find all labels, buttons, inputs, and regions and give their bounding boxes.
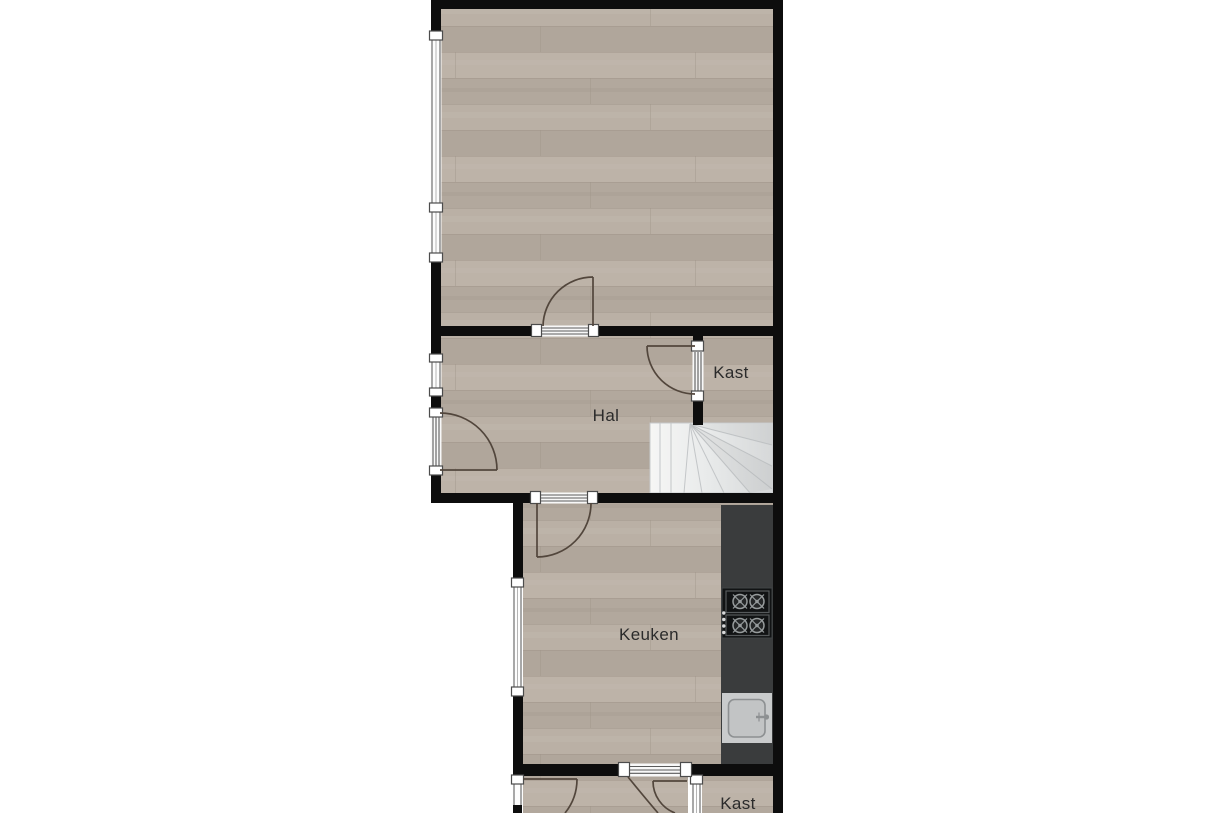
wall-keuken-bottom [690,764,783,776]
floorplan-drawing: Hal Kast Keuken Kast [0,0,1220,813]
kitchen-counter [721,505,773,764]
wall-left-seg [431,0,441,33]
doorway-hal-keuken [531,492,598,504]
wall-main-hal-divider [598,326,783,336]
window-bottom-divider [691,775,703,813]
doorway-main-hal [532,325,599,337]
room-floor-main [441,8,773,326]
wall-left-seg [431,262,441,356]
floorplan-canvas: Hal Kast Keuken Kast [0,0,1220,813]
sink-icon [722,693,772,743]
doorway-hal-kast [692,341,704,401]
wall-main-hal-divider [431,326,533,336]
wall-keuken-left-seg [513,503,523,580]
room-label-kast-lower: Kast [720,794,756,813]
stairs [650,423,773,493]
room-label-hal: Hal [593,406,620,425]
wall-keuken-bottom [513,764,620,776]
room-label-kast-upper: Kast [713,363,749,382]
wall-keuken-left-seg [513,695,523,764]
wall-bottom-left-seg [513,805,522,813]
wall-top [431,0,783,9]
window-main-left [430,31,443,262]
doorway-hal-left [430,408,443,475]
window-hal-left [430,354,443,396]
window-keuken-left [512,578,524,696]
window-bottom-left [512,775,524,805]
doorway-keuken-bottom [619,763,692,777]
wall-hal-bottom [597,493,783,503]
room-label-keuken: Keuken [619,625,679,644]
wall-hal-kast-divider [693,401,703,425]
wall-right [773,0,783,813]
wall-hal-bottom [431,493,532,503]
stove-icon [722,588,772,638]
